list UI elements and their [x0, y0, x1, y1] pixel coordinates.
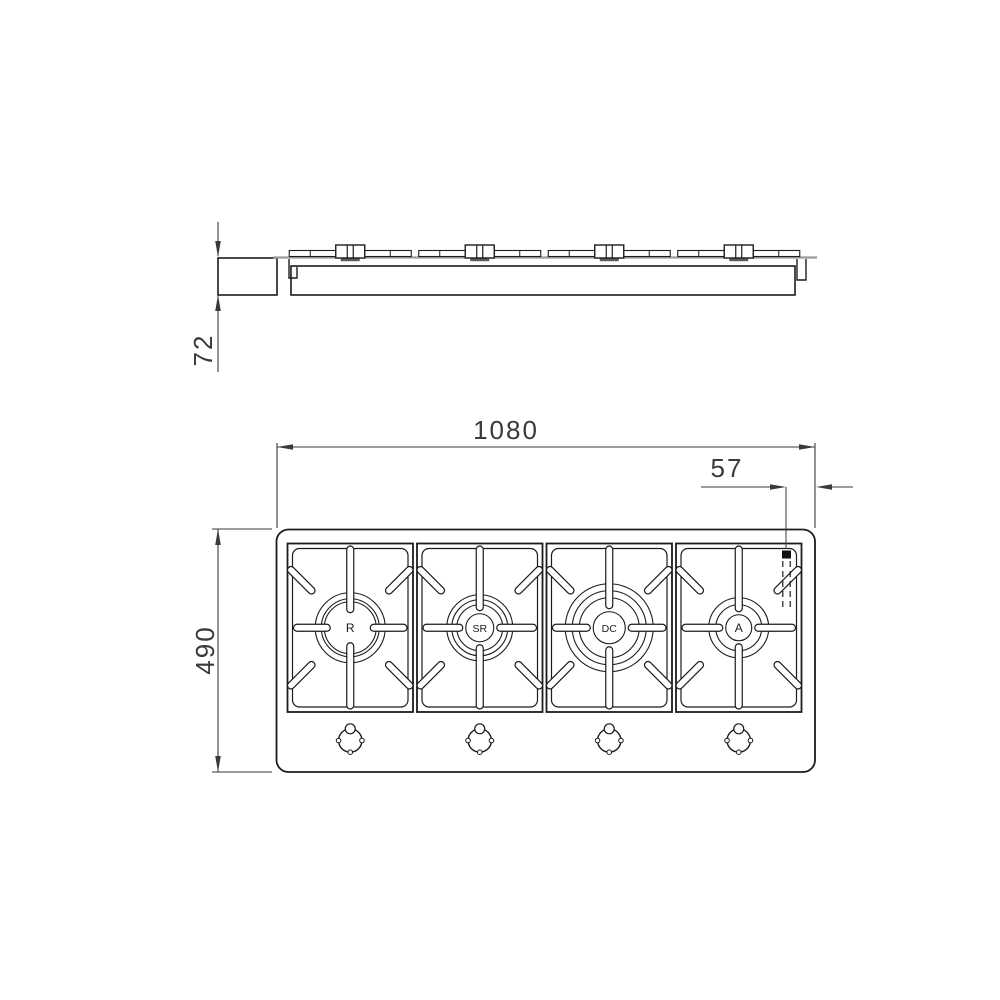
technical-drawing-page: 72 1080 57 490: [0, 0, 1000, 1000]
burner-label-sr: SR: [472, 623, 487, 635]
side-grate-section: [289, 245, 411, 261]
burner-label-dc: DC: [602, 623, 618, 635]
dim-offset-arrow-right: [770, 484, 786, 490]
knob-detent: [360, 738, 365, 743]
side-mount-bracket-right: [797, 259, 806, 280]
knob-detent: [595, 738, 600, 743]
knob-detent: [466, 738, 471, 743]
burner-label-a: A: [735, 621, 743, 635]
grate-bar-horizontal-left: [294, 624, 331, 631]
grate-bar-horizontal-left: [682, 624, 723, 631]
cooktop-technical-drawing: 72 1080 57 490: [0, 0, 1000, 1000]
dim-height-arrow-up: [215, 295, 221, 311]
burner-label-r: R: [346, 621, 355, 635]
knob-detent: [748, 738, 753, 743]
dim-depth-label: 490: [190, 625, 220, 674]
dim-height: 72: [188, 222, 221, 372]
dim-depth: 490: [190, 529, 272, 772]
top-view: 1080 57 490 RSRDCA: [190, 415, 853, 772]
grate-bar-vertical-bottom: [735, 644, 742, 709]
knob-detent: [336, 738, 341, 743]
side-burner-cap: [724, 245, 753, 258]
dim-height-arrow-down: [215, 241, 221, 257]
grate-bar-vertical-top: [347, 546, 354, 613]
knob-detent: [736, 750, 741, 755]
dim-depth-arrow-down: [215, 756, 221, 772]
grate-bar-horizontal-left: [423, 624, 463, 631]
side-grate-section: [678, 245, 800, 261]
dim-offset-arrow-left: [816, 484, 832, 490]
dim-depth-arrow-up: [215, 529, 221, 545]
grate-bar-horizontal-right: [370, 624, 407, 631]
side-left-trim: [218, 258, 277, 295]
side-burner-cap: [595, 245, 624, 258]
knob-detent: [477, 750, 482, 755]
grate-bar-vertical-bottom: [476, 645, 483, 709]
knob-detent: [348, 750, 353, 755]
grate-bar-vertical-bottom: [606, 647, 613, 709]
knob-detent: [607, 750, 612, 755]
knob-pointer: [345, 724, 355, 734]
dim-offset-label: 57: [711, 453, 744, 483]
grate-bar-vertical-top: [606, 546, 613, 609]
grate-bar-horizontal-right: [755, 624, 796, 631]
burner-section-a: A: [675, 544, 803, 713]
burner-section-dc: DC: [545, 544, 673, 713]
dim-width-label: 1080: [473, 415, 539, 445]
grate-bar-vertical-top: [735, 546, 742, 612]
side-grate-section: [419, 245, 541, 261]
side-burner-cap: [465, 245, 494, 258]
burner-section-sr: SR: [416, 544, 544, 713]
dim-offset: 57: [701, 453, 853, 490]
igniter-marker: [782, 551, 791, 559]
side-burner-cap: [336, 245, 365, 258]
side-grate-section: [548, 245, 670, 261]
knob-detent: [725, 738, 730, 743]
grate-bar-horizontal-left: [553, 624, 591, 631]
dim-width-arrow-left: [277, 444, 293, 450]
knob-pointer: [475, 724, 485, 734]
side-view: 72: [188, 222, 817, 372]
dim-width-arrow-right: [799, 444, 815, 450]
knob-pointer: [734, 724, 744, 734]
grate-bar-horizontal-right: [497, 624, 537, 631]
side-body: [291, 266, 795, 295]
grate-bar-vertical-top: [476, 546, 483, 611]
side-grates: [289, 245, 800, 261]
knob-pointer: [604, 724, 614, 734]
knob-detent: [489, 738, 494, 743]
knob-detent: [619, 738, 624, 743]
grate-bar-vertical-bottom: [347, 643, 354, 709]
burner-section-r: R: [286, 544, 414, 713]
grate-bar-horizontal-right: [628, 624, 666, 631]
dim-height-label: 72: [188, 334, 218, 367]
